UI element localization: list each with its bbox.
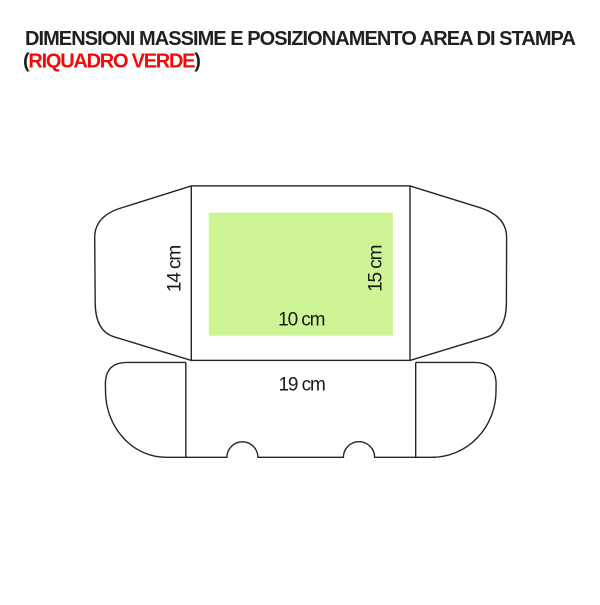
svg-text:10 cm: 10 cm [278,310,325,331]
svg-text:15 cm: 15 cm [366,245,387,292]
svg-text:DIMENSIONI MASSIME E POSIZIONA: DIMENSIONI MASSIME E POSIZIONAMENTO AREA… [25,28,575,50]
svg-text:(RIQUADRO VERDE): (RIQUADRO VERDE) [23,50,200,72]
svg-text:19 cm: 19 cm [278,375,325,396]
svg-text:14 cm: 14 cm [165,246,186,293]
